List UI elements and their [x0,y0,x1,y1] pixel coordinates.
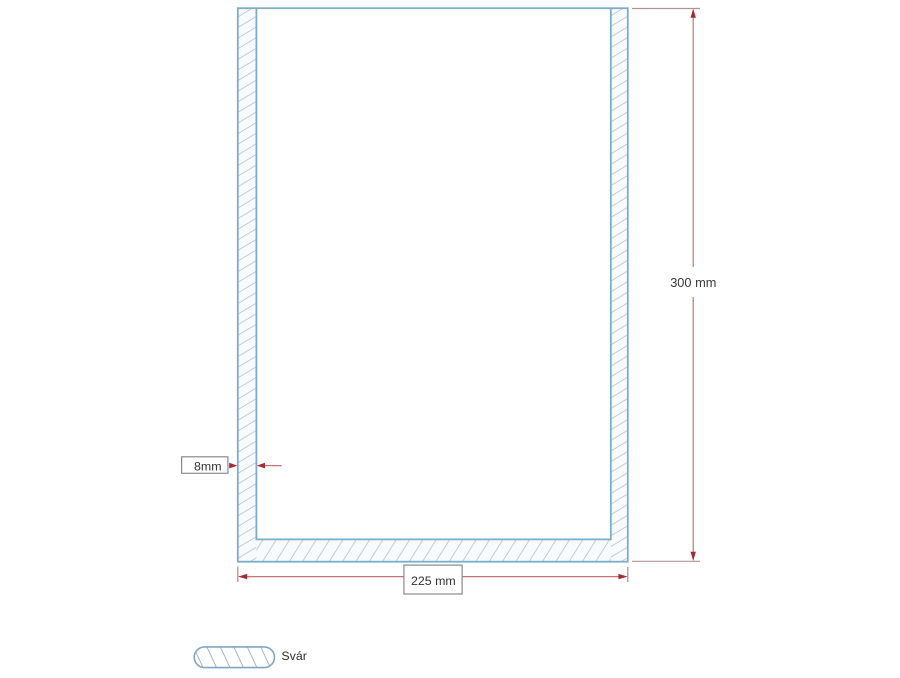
svg-text:8mm: 8mm [194,459,222,473]
svg-text:Svár: Svár [281,649,306,663]
svg-text:225 mm: 225 mm [411,574,456,588]
svg-text:300 mm: 300 mm [670,275,716,290]
